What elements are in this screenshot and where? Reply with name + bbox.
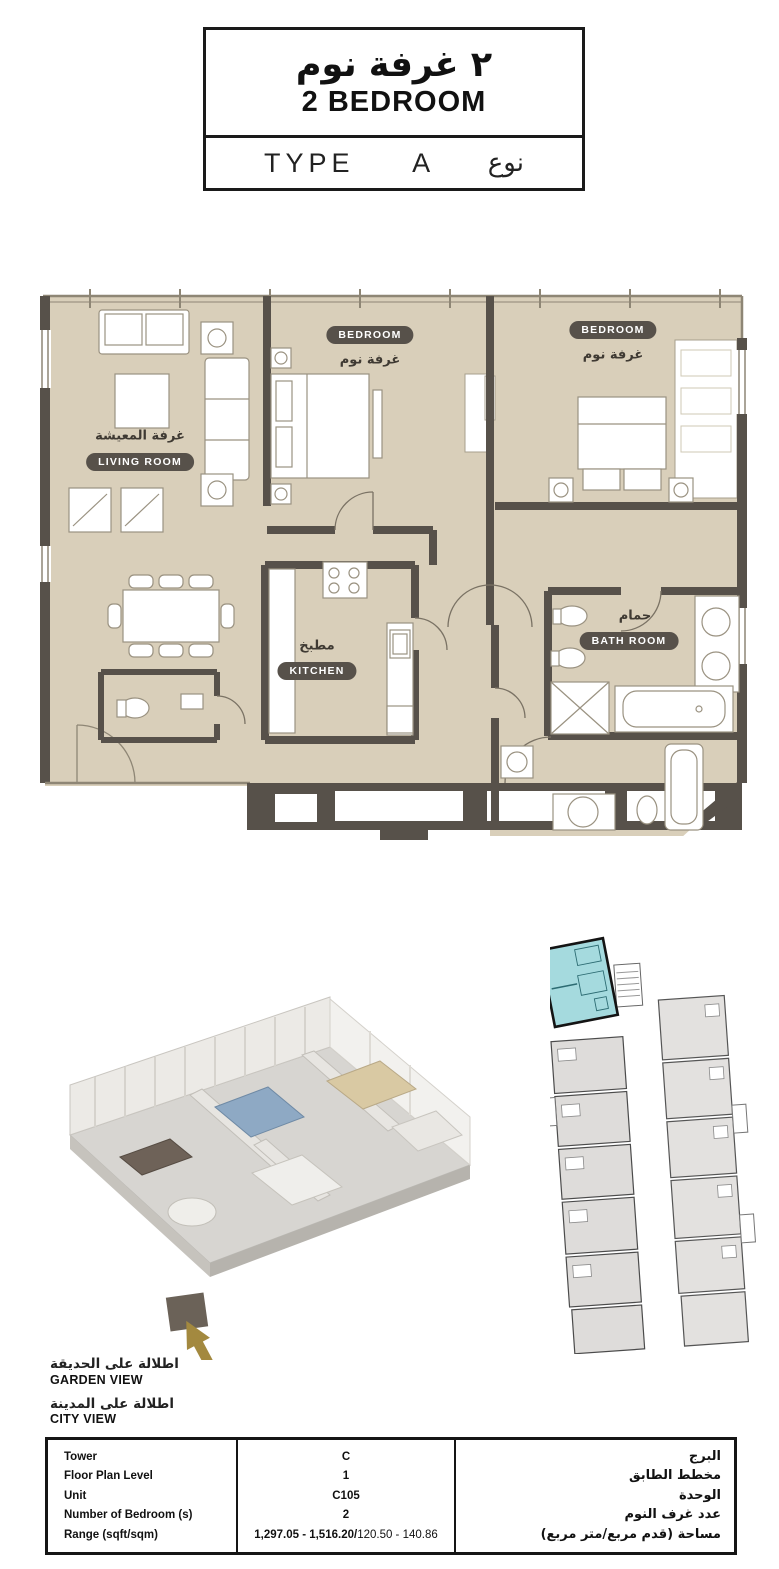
isometric-render — [40, 985, 490, 1360]
bathroom-label-ar: حمام — [619, 609, 652, 624]
shower — [551, 682, 609, 734]
title-english: 2 BEDROOM — [302, 86, 487, 119]
bathroom-label: BATH ROOM — [580, 632, 679, 650]
toilet — [637, 796, 657, 824]
bed — [578, 397, 666, 469]
living-room-label: LIVING ROOM — [86, 453, 194, 471]
title-type-row: TYPE A نوع — [206, 138, 582, 188]
garden-view-en: GARDEN VIEW — [50, 1373, 179, 1389]
row-value: C — [342, 1449, 350, 1466]
title-arabic: ٢ غرفة نوم — [296, 47, 492, 84]
basin — [702, 652, 730, 680]
fridge — [387, 706, 413, 733]
kitchen-label: KITCHEN — [277, 662, 356, 680]
coffee-table — [115, 374, 169, 428]
key-plan-units-right — [658, 995, 748, 1346]
row-label: Unit — [64, 1488, 236, 1505]
iso-dining-table — [168, 1198, 216, 1226]
row-label: Tower — [64, 1449, 236, 1466]
plant-ornament — [201, 322, 233, 354]
plant-ornament — [201, 474, 233, 506]
bedroom1-label: BEDROOM — [326, 326, 413, 344]
details-table-arabic: البرج مخطط الطابق الوحدة عدد غرف النوم م… — [456, 1440, 734, 1552]
garden-view-ar: اطلالة على الحديقة — [50, 1356, 179, 1373]
living-room-label-ar: غرفة المعيشة — [95, 429, 185, 444]
row-value: C105 — [332, 1488, 360, 1505]
key-plan-drawing — [550, 922, 778, 1354]
row-label: Range (sqft/sqm) — [64, 1527, 236, 1544]
details-table-labels: Tower Floor Plan Level Unit Number of Be… — [48, 1440, 238, 1552]
city-view-ar: اطلالة على المدينة — [50, 1396, 179, 1413]
details-table-values: C 1 C105 2 1,297.05 - 1,516.20/120.50 - … — [238, 1440, 456, 1552]
bathtub — [615, 686, 733, 732]
type-arabic: نوع — [488, 148, 524, 178]
powder-basin — [181, 694, 203, 709]
nightstand — [271, 348, 291, 368]
bedroom2-label: BEDROOM — [569, 321, 656, 339]
round-basin — [568, 797, 598, 827]
type-value: A — [412, 148, 430, 179]
row-value: 2 — [343, 1507, 349, 1524]
row-ar: عدد غرف النوم — [624, 1507, 721, 1524]
row-ar: البرج — [689, 1449, 721, 1466]
basin — [702, 608, 730, 636]
key-plan-core — [614, 963, 643, 1007]
bench — [373, 390, 382, 458]
row-label: Number of Bedroom (s) — [64, 1507, 236, 1524]
cooktop — [323, 562, 367, 598]
details-table: Tower Floor Plan Level Unit Number of Be… — [45, 1437, 737, 1555]
chaise-sofa — [205, 358, 249, 480]
row-ar: مخطط الطابق — [629, 1468, 721, 1485]
washing-machine — [501, 746, 533, 778]
title-top-section: ٢ غرفة نوم 2 BEDROOM — [206, 30, 582, 138]
row-ar: الوحدة — [679, 1488, 721, 1505]
key-plan-units-left — [551, 1037, 645, 1354]
city-view-en: CITY VIEW — [50, 1412, 179, 1428]
bedroom2-label-ar: غرفة نوم — [583, 348, 643, 363]
row-value-range: 1,297.05 - 1,516.20/120.50 - 140.86 — [254, 1527, 438, 1544]
nightstand — [271, 484, 291, 504]
floor-plan: غرفة المعيشة LIVING ROOM BEDROOM غرفة نو… — [35, 278, 748, 865]
row-label: Floor Plan Level — [64, 1468, 236, 1485]
key-plan-highlighted-unit — [550, 938, 618, 1027]
row-value: 1 — [343, 1468, 349, 1485]
key-plan — [550, 922, 778, 1354]
type-label: TYPE — [264, 148, 355, 179]
kitchen-label-ar: مطبخ — [299, 639, 334, 654]
row-ar: مساحة (قدم مربع/متر مربع) — [541, 1527, 721, 1544]
view-labels: اطلالة على الحديقة GARDEN VIEW اطلالة عل… — [50, 1356, 179, 1435]
title-block: ٢ غرفة نوم 2 BEDROOM TYPE A نوع — [203, 27, 585, 191]
bedroom1-label-ar: غرفة نوم — [340, 353, 400, 368]
isometric-render-drawing — [40, 985, 490, 1360]
nightstand — [549, 478, 573, 502]
nightstand — [669, 478, 693, 502]
kitchen-counter — [269, 569, 295, 733]
vertical-bathtub — [665, 744, 703, 830]
